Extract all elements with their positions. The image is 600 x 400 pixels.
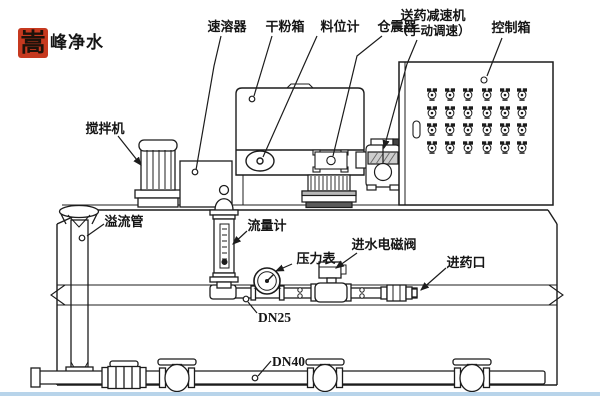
screw-feeder: [302, 175, 356, 208]
overflow-pipe: [60, 206, 99, 373]
brand-name: 峰净水: [50, 32, 104, 52]
brand-logo: 嵩 峰净水: [18, 28, 104, 58]
label-dry-powder-box: 干粉箱: [265, 19, 304, 34]
label-dn25: DN25: [258, 310, 291, 325]
label-flow-meter: 流量计: [247, 218, 286, 233]
stamp-character: 嵩: [20, 28, 45, 57]
label-dosing-inlet: 进药口: [446, 255, 485, 270]
ball-valve: [306, 359, 344, 392]
gate-valve: [102, 361, 146, 389]
label-level-gauge: 料位计: [320, 19, 359, 34]
dosing-system-diagram: 速溶器 干粉箱 料位计 仓震器 送药减速机 （手动调速） 控制箱 搅拌机 溢流管…: [0, 0, 600, 400]
label-mixer: 搅拌机: [85, 121, 124, 136]
control-box: [399, 62, 553, 205]
level-gauge-port: [246, 151, 274, 171]
diagram-page: 速溶器 干粉箱 料位计 仓震器 送药减速机 （手动调速） 控制箱 搅拌机 溢流管…: [0, 0, 600, 400]
photo-bottom-strip: [0, 392, 600, 396]
label-pressure-gauge: 压力表: [296, 251, 336, 266]
inlet-solenoid-valve: [311, 262, 351, 302]
label-dn40: DN40: [272, 354, 305, 369]
label-solenoid-valve: 进水电磁阀: [351, 237, 416, 252]
bin-vibrator-port: [313, 150, 348, 172]
label-overflow-pipe: 溢流管: [104, 214, 143, 229]
ball-valve: [158, 359, 196, 392]
ball-valve: [453, 359, 491, 392]
label-dosing-reducer-sub: （手动调速）: [395, 23, 470, 38]
label-control-box: 控制箱: [491, 20, 530, 35]
dosing-inlet-union: [381, 285, 417, 301]
mixer-motor: [135, 140, 181, 207]
label-dosing-reducer: 送药减速机: [399, 8, 465, 23]
label-dissolver: 速溶器: [207, 19, 247, 34]
door-handle: [413, 121, 420, 138]
